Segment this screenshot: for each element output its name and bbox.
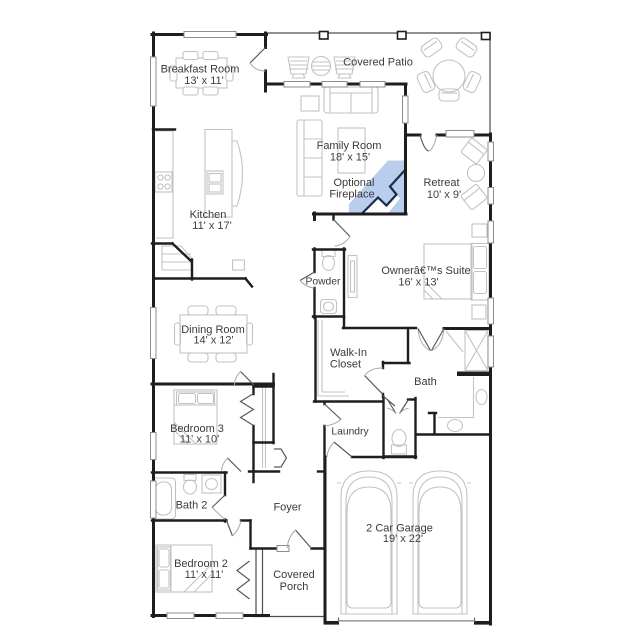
svg-text:11' x 10': 11' x 10' — [180, 434, 219, 446]
svg-text:Breakfast Room: Breakfast Room — [161, 64, 240, 76]
svg-text:Porch: Porch — [280, 581, 309, 593]
svg-text:19' x 22': 19' x 22' — [383, 533, 423, 545]
svg-text:Covered Patio: Covered Patio — [343, 57, 413, 69]
svg-text:13' x 11': 13' x 11' — [184, 75, 223, 87]
svg-text:Bath 2: Bath 2 — [176, 500, 208, 512]
svg-text:Optional: Optional — [334, 177, 375, 189]
svg-text:Powder: Powder — [306, 277, 341, 288]
svg-text:14' x 12': 14' x 12' — [193, 335, 233, 347]
svg-text:Covered: Covered — [273, 569, 315, 581]
svg-text:Laundry: Laundry — [331, 427, 369, 438]
svg-text:11' x 11': 11' x 11' — [185, 569, 224, 581]
svg-text:Foyer: Foyer — [273, 502, 301, 514]
svg-text:10' x 9': 10' x 9' — [427, 189, 461, 201]
svg-text:Family Room: Family Room — [317, 140, 382, 152]
svg-text:Ownerâ€™s Suite: Ownerâ€™s Suite — [381, 265, 470, 277]
svg-text:Closet: Closet — [330, 359, 361, 371]
svg-text:Retreat: Retreat — [423, 177, 459, 189]
svg-text:Bath: Bath — [414, 376, 437, 388]
svg-text:Fireplace: Fireplace — [329, 189, 374, 201]
svg-text:18' x 15': 18' x 15' — [330, 152, 370, 164]
svg-text:16' x 13': 16' x 13' — [398, 277, 438, 289]
svg-text:Walk-In: Walk-In — [330, 347, 367, 359]
svg-text:11' x 17': 11' x 17' — [192, 220, 231, 232]
